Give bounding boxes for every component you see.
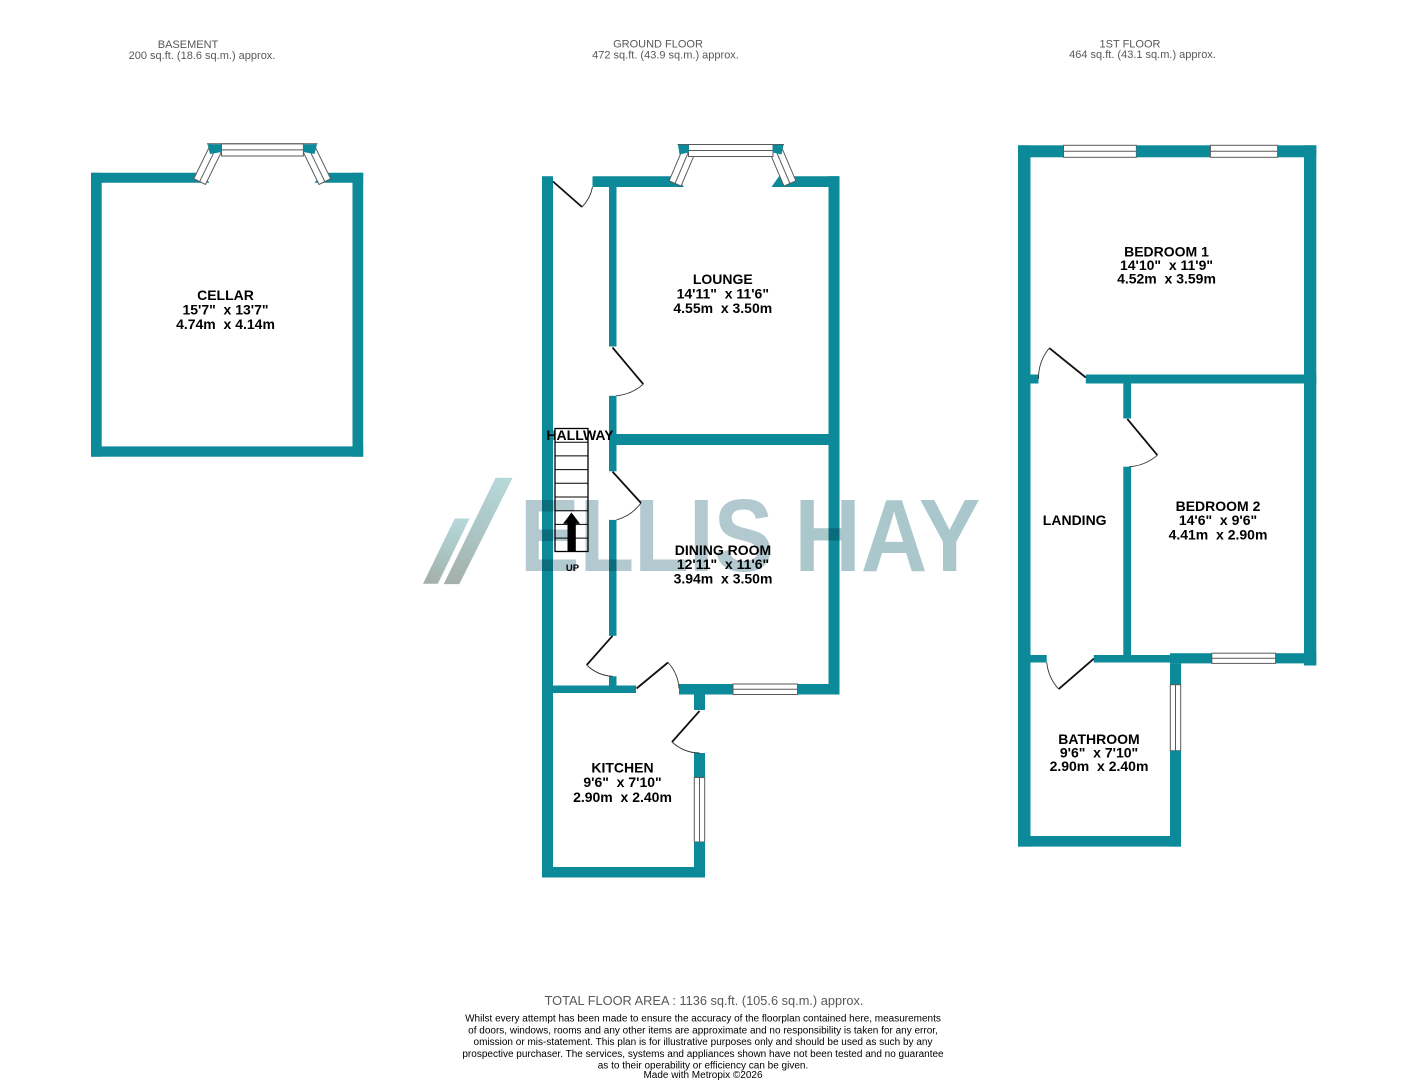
svg-text:UP: UP — [566, 563, 580, 574]
svg-text:Made with Metropix ©2026: Made with Metropix ©2026 — [643, 1070, 763, 1080]
svg-text:15'7" x 13'7": 15'7" x 13'7" — [182, 302, 268, 318]
svg-text:CELLAR: CELLAR — [197, 287, 254, 303]
svg-text:HAY: HAY — [794, 478, 980, 593]
svg-text:of doors, windows, rooms and a: of doors, windows, rooms and any other i… — [468, 1025, 938, 1036]
svg-text:14'11" x 11'6": 14'11" x 11'6" — [677, 286, 769, 302]
svg-text:4.74m x 4.14m: 4.74m x 4.14m — [176, 316, 275, 332]
svg-text:472 sq.ft. (43.9 sq.m.) approx: 472 sq.ft. (43.9 sq.m.) approx. — [592, 50, 739, 62]
svg-text:4.55m x 3.50m: 4.55m x 3.50m — [673, 300, 772, 316]
svg-text:2.90m x 2.40m: 2.90m x 2.40m — [1050, 758, 1149, 774]
svg-text:LANDING: LANDING — [1043, 512, 1107, 528]
svg-text:Whilst every attempt has been: Whilst every attempt has been made to en… — [465, 1014, 941, 1025]
svg-text:9'6" x 7'10": 9'6" x 7'10" — [583, 774, 661, 790]
svg-text:3.94m x 3.50m: 3.94m x 3.50m — [674, 570, 773, 586]
svg-text:omission or mis-statement. Thi: omission or mis-statement. This plan is … — [474, 1037, 933, 1048]
svg-text:TOTAL FLOOR AREA : 1136 sq.ft.: TOTAL FLOOR AREA : 1136 sq.ft. (105.6 sq… — [545, 993, 864, 1008]
svg-text:200 sq.ft. (18.6 sq.m.) approx: 200 sq.ft. (18.6 sq.m.) approx. — [129, 50, 276, 62]
svg-text:2.90m x 2.40m: 2.90m x 2.40m — [573, 789, 672, 805]
svg-text:4.52m x 3.59m: 4.52m x 3.59m — [1117, 271, 1216, 287]
svg-text:HALLWAY: HALLWAY — [546, 427, 614, 443]
svg-text:KITCHEN: KITCHEN — [591, 760, 653, 776]
svg-text:4.41m x 2.90m: 4.41m x 2.90m — [1169, 527, 1268, 543]
svg-text:prospective purchaser. The ser: prospective purchaser. The services, sys… — [462, 1049, 944, 1060]
svg-text:464 sq.ft. (43.1 sq.m.) approx: 464 sq.ft. (43.1 sq.m.) approx. — [1069, 49, 1216, 61]
